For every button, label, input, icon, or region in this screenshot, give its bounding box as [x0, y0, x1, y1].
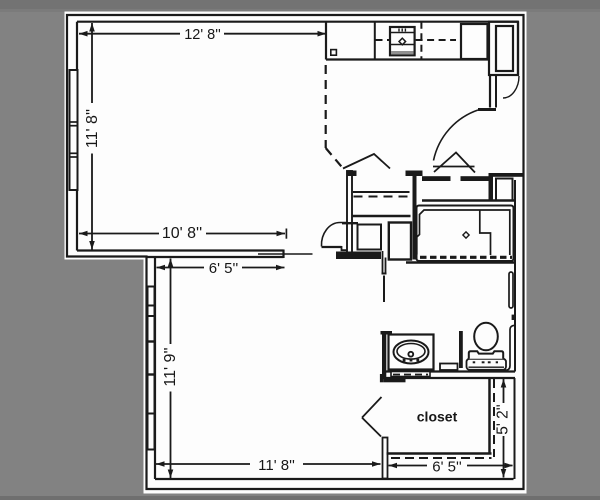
- svg-text:5' 2'': 5' 2'': [495, 404, 512, 434]
- svg-text:11' 8'': 11' 8'': [258, 457, 295, 474]
- svg-text:12' 8'': 12' 8'': [184, 27, 221, 43]
- svg-text:11' 8'': 11' 8'': [84, 109, 101, 148]
- svg-text:6' 5'': 6' 5'': [432, 458, 462, 475]
- svg-text:11' 9'': 11' 9'': [162, 347, 179, 386]
- svg-text:closet: closet: [417, 409, 458, 425]
- svg-text:10' 8'': 10' 8'': [162, 225, 202, 242]
- svg-text:6' 5'': 6' 5'': [209, 260, 239, 277]
